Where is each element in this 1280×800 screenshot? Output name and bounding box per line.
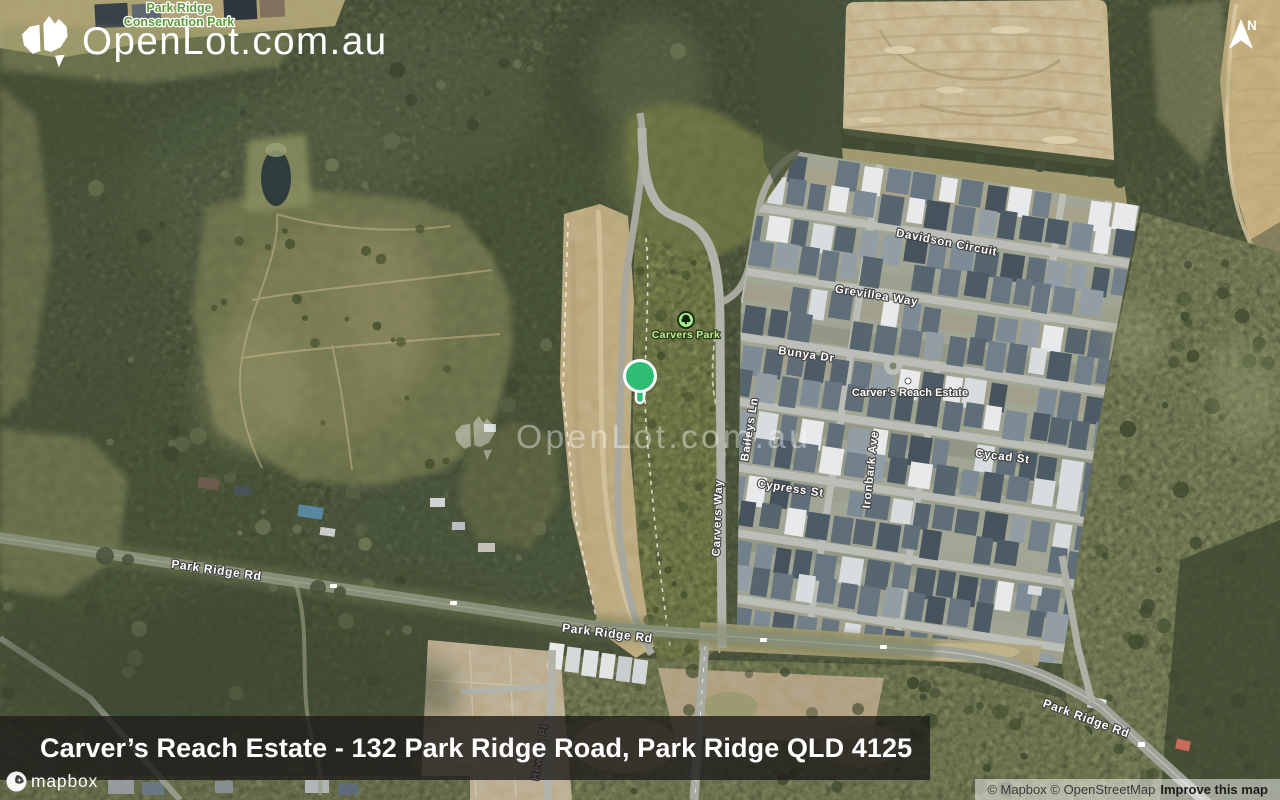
- svg-text:OpenLot.com.au: OpenLot.com.au: [82, 20, 388, 63]
- svg-text:Park Ridge: Park Ridge: [146, 1, 211, 15]
- svg-text:Carvers Park: Carvers Park: [652, 329, 720, 341]
- svg-text:OpenLot.com.au: OpenLot.com.au: [516, 419, 811, 456]
- svg-text:Carver’s Reach Estate: Carver’s Reach Estate: [852, 387, 968, 399]
- svg-text:N: N: [1247, 18, 1257, 33]
